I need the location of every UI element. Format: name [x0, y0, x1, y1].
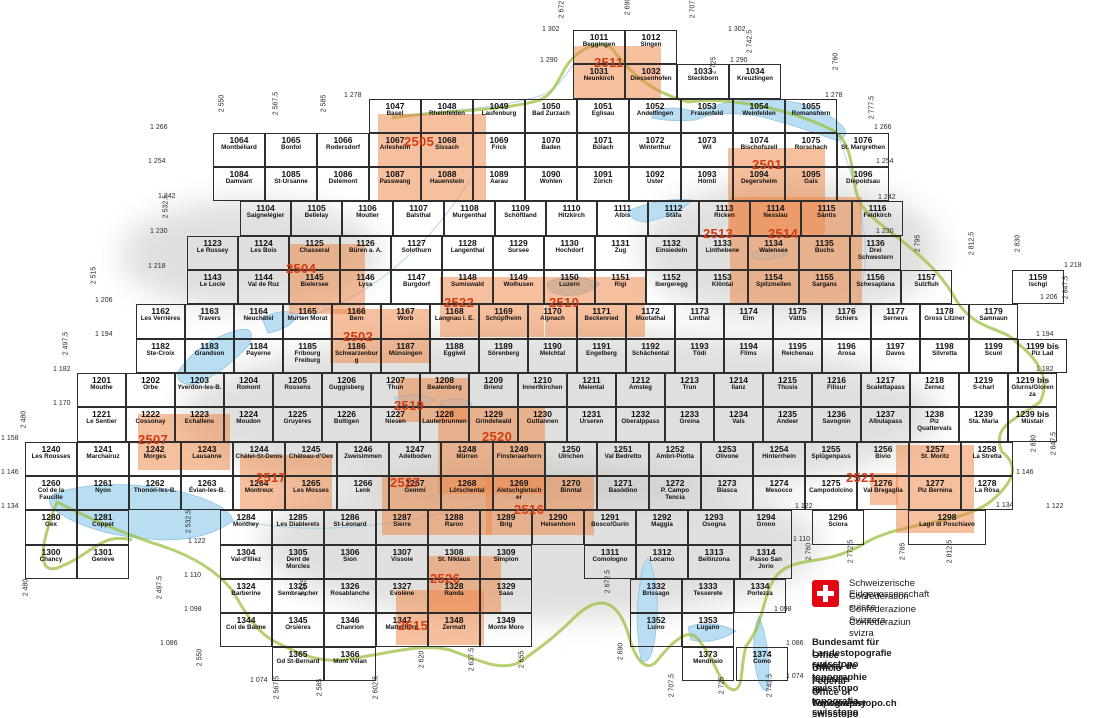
coordinate-label-northing: 1 122	[188, 538, 206, 545]
map-sheet-cell-1228[interactable]: 1228Lauterbrunnen	[420, 407, 469, 442]
map-sheet-cell-1064[interactable]: 1064Montbéliard	[213, 133, 265, 167]
sheet-name: Zürich	[579, 179, 627, 186]
coordinate-label-easting: 2 567.5	[273, 86, 280, 122]
map-sheet-cell-1111[interactable]: 1111Albis	[597, 201, 648, 236]
map-sheet-cell-1176[interactable]: 1176Schiers	[822, 304, 871, 339]
map-sheet-cell-1273[interactable]: 1273Biasca	[701, 476, 753, 510]
map-sheet-cell-1185[interactable]: 1185Fribourg Freiburg	[283, 339, 332, 373]
map-sheet-cell-1294[interactable]: 1294Grono	[740, 510, 792, 545]
map-index-canvas: 1011Beggingen1012Singen1031Neunkirch1032…	[0, 0, 1100, 718]
map-sheet-cell-1152[interactable]: 1152Ibergeregg	[646, 270, 697, 304]
map-sheet-cell-1053[interactable]: 1053Frauenfeld	[681, 99, 733, 133]
map-sheet-cell-1288[interactable]: 1288Raron	[428, 510, 480, 545]
sheet-name: Filisur	[814, 385, 859, 392]
map-sheet-cell-1075[interactable]: 1075Rorschach	[785, 133, 837, 167]
map-sheet-cell-1215[interactable]: 1215Thusis	[763, 373, 812, 407]
sheet-name: Schächental	[628, 351, 673, 358]
sheet-name: Sierre	[378, 522, 426, 529]
map-sheet-cell-1034[interactable]: 1034Kreuzlingen	[729, 64, 781, 99]
map-sheet-cell-1087[interactable]: 1087Passwang	[369, 167, 421, 201]
map-sheet-cell-1232[interactable]: 1232Oberalppass	[616, 407, 665, 442]
map-sheet-cell-1281[interactable]: 1281Coppet	[77, 510, 129, 545]
map-sheet-cell-1151[interactable]: 1151Rigi	[595, 270, 646, 304]
coordinate-label-northing: 1 266	[150, 124, 168, 131]
map-sheet-cell-1108[interactable]: 1108Murgenthal	[444, 201, 495, 236]
map-sheet-cell-1047[interactable]: 1047Basel	[369, 99, 421, 133]
map-sheet-cell-1033[interactable]: 1033Steckborn	[677, 64, 729, 99]
composite-sheet-number-2527[interactable]: 2527	[390, 475, 420, 490]
map-sheet-cell-1179[interactable]: 1179Samnaun	[969, 304, 1018, 339]
map-sheet-cell-1353[interactable]: 1353Lugano	[682, 613, 734, 647]
sheet-name: Porlezza	[736, 591, 784, 598]
map-sheet-cell-1329[interactable]: 1329Saas	[480, 579, 532, 613]
composite-sheet-number-2502[interactable]: 2502	[343, 329, 373, 344]
composite-sheet-number-2514[interactable]: 2514	[768, 226, 798, 241]
sheet-name: Arosa	[824, 351, 869, 358]
map-sheet-cell-1305[interactable]: 1305Dent de Morcles	[272, 545, 324, 579]
sheet-name: Bosco/Gurin	[586, 522, 634, 529]
sheet-name: Saignelégier	[242, 213, 289, 220]
sheet-name: Savognin	[814, 419, 859, 426]
coordinate-label-easting: 2 672.5	[605, 564, 612, 600]
map-sheet-cell-1128[interactable]: 1128Langenthal	[442, 236, 493, 270]
map-sheet-cell-1092[interactable]: 1092Uster	[629, 167, 681, 201]
map-sheet-cell-1192[interactable]: 1192Schächental	[626, 339, 675, 373]
map-sheet-cell-1226[interactable]: 1226Boltigen	[322, 407, 371, 442]
map-sheet-cell-1157[interactable]: 1157Sulzfluh	[901, 270, 952, 304]
sheet-name: Nesslau	[752, 213, 799, 220]
sheet-name: Como	[738, 659, 786, 666]
composite-sheet-number-2513[interactable]: 2513	[703, 226, 733, 241]
map-sheet-cell-1352[interactable]: 1352Luino	[630, 613, 682, 647]
map-sheet-cell-1072[interactable]: 1072Winterthur	[629, 133, 681, 167]
map-sheet-cell-1211[interactable]: 1211Meiental	[567, 373, 616, 407]
map-sheet-cell-1210[interactable]: 1210Innertkirchen	[518, 373, 567, 407]
map-sheet-cell-1105[interactable]: 1105Bellelay	[291, 201, 342, 236]
map-sheet-cell-1300[interactable]: 1300Chancy	[25, 545, 77, 579]
map-sheet-cell-1175[interactable]: 1175Vättis	[773, 304, 822, 339]
map-sheet-cell-1086[interactable]: 1086Delémont	[317, 167, 369, 201]
sheet-name: Bülach	[579, 145, 627, 152]
map-sheet-cell-1088[interactable]: 1088Hauenstein	[421, 167, 473, 201]
map-sheet-cell-1131[interactable]: 1131Zug	[595, 236, 646, 270]
map-sheet-cell-1209[interactable]: 1209Brienz	[469, 373, 518, 407]
swisstopo-url-link[interactable]: www.swisstopo.ch	[812, 698, 897, 709]
map-sheet-cell-1344[interactable]: 1344Col de Balme	[220, 613, 272, 647]
map-sheet-cell-1129[interactable]: 1129Sursee	[493, 236, 544, 270]
map-sheet-cell-1112[interactable]: 1112Stäfa	[648, 201, 699, 236]
map-sheet-cell-1178[interactable]: 1178Gross Litzner	[920, 304, 969, 339]
map-sheet-cell-1216[interactable]: 1216Filisur	[812, 373, 861, 407]
map-sheet-cell-1187[interactable]: 1187Münsingen	[381, 339, 430, 373]
map-sheet-cell-1212[interactable]: 1212Amsteg	[616, 373, 665, 407]
map-sheet-cell-1287[interactable]: 1287Sierre	[376, 510, 428, 545]
map-sheet-cell-1235[interactable]: 1235Andeer	[763, 407, 812, 442]
sheet-name: Hinterrhein	[755, 454, 803, 461]
map-sheet-cell-1249[interactable]: 1249Finsteraarhorn	[493, 442, 545, 476]
map-sheet-cell-1243[interactable]: 1243Lausanne	[181, 442, 233, 476]
map-sheet-cell-1206[interactable]: 1206Guggisberg	[322, 373, 371, 407]
map-sheet-cell-1094[interactable]: 1094Degersheim	[733, 167, 785, 201]
composite-sheet-number-2517[interactable]: 2517	[256, 470, 286, 485]
map-sheet-cell-1233[interactable]: 1233Greina	[665, 407, 714, 442]
map-sheet-cell-1304[interactable]: 1304Val-d'Illiez	[220, 545, 272, 579]
map-sheet-cell-1223[interactable]: 1223Echallens	[175, 407, 224, 442]
map-sheet-cell-1135[interactable]: 1135Buchs	[799, 236, 850, 270]
map-sheet-cell-1132[interactable]: 1132Einsiedeln	[646, 236, 697, 270]
map-sheet-cell-1333[interactable]: 1333Tesserete	[682, 579, 734, 613]
coordinate-label-easting: 2 760	[833, 44, 840, 80]
composite-sheet-number-2505[interactable]: 2505	[404, 134, 434, 149]
sheet-name: Rorschach	[787, 145, 835, 152]
map-sheet-cell-1224[interactable]: 1224Moudon	[224, 407, 273, 442]
map-sheet-cell-1312[interactable]: 1312Locarno	[636, 545, 688, 579]
sheet-name: Beckenried	[579, 316, 624, 323]
composite-sheet-number-2516[interactable]: 2516	[514, 502, 544, 517]
map-sheet-cell-1172[interactable]: 1172Muotathal	[626, 304, 675, 339]
coordinate-label-easting: 2 532.5	[186, 504, 193, 540]
map-sheet-cell-1154[interactable]: 1154Spitzmeilen	[748, 270, 799, 304]
coordinate-label-northing: 1 122	[1046, 503, 1064, 510]
map-sheet-cell-1084[interactable]: 1084Damvant	[213, 167, 265, 201]
map-sheet-cell-1313[interactable]: 1313Bellinzona	[688, 545, 740, 579]
map-sheet-cell-1090[interactable]: 1090Wohlen	[525, 167, 577, 201]
map-sheet-cell-1196[interactable]: 1196Arosa	[822, 339, 871, 373]
map-sheet-cell-1136[interactable]: 1136Drei Schwestern	[850, 236, 901, 270]
sheet-name: Kreuzlingen	[731, 76, 779, 83]
coordinate-label-easting: 2 742.5	[747, 24, 754, 60]
coordinate-label-northing: 1 302	[728, 26, 746, 33]
sheet-name: Tödi	[677, 351, 722, 358]
composite-sheet-number-2520[interactable]: 2520	[482, 429, 512, 444]
map-sheet-cell-1306[interactable]: 1306Sion	[324, 545, 376, 579]
sheet-name: Eglisau	[579, 111, 627, 118]
map-sheet-cell-1236[interactable]: 1236Savognin	[812, 407, 861, 442]
map-sheet-cell-1332[interactable]: 1332Brissago	[630, 579, 682, 613]
map-sheet-cell-1258[interactable]: 1258La Stretta	[961, 442, 1013, 476]
map-sheet-cell-1208[interactable]: 1208Beatenberg	[420, 373, 469, 407]
map-sheet-cell-1085[interactable]: 1085St-Ursanne	[265, 167, 317, 201]
map-sheet-cell-1292[interactable]: 1292Maggia	[636, 510, 688, 545]
map-sheet-cell-1266[interactable]: 1266Lenk	[337, 476, 389, 510]
map-sheet-cell-1146[interactable]: 1146Lyss	[340, 270, 391, 304]
map-sheet-cell-1091[interactable]: 1091Zürich	[577, 167, 629, 201]
coordinate-label-northing: 1 134	[1, 503, 19, 510]
sheet-name: Flims	[726, 351, 771, 358]
map-sheet-cell-1054[interactable]: 1054Weinfelden	[733, 99, 785, 133]
map-sheet-cell-1115[interactable]: 1115Säntis	[801, 201, 852, 236]
map-sheet-cell-1314[interactable]: 1314Passo San Jorio	[740, 545, 792, 579]
map-sheet-cell-1219[interactable]: 1219S-charl	[959, 373, 1008, 407]
map-sheet-cell-1242[interactable]: 1242Morges	[129, 442, 181, 476]
map-sheet-cell-1069[interactable]: 1069Frick	[473, 133, 525, 167]
sheet-name: Vättis	[775, 316, 820, 323]
sheet-name: Le Locle	[189, 282, 236, 289]
sheet-name: Les Bois	[240, 248, 287, 255]
map-sheet-cell-1250[interactable]: 1250Ulrichen	[545, 442, 597, 476]
map-sheet-cell-1201[interactable]: 1201Mouthe	[77, 373, 126, 407]
coordinate-label-northing: 1 254	[148, 158, 166, 165]
map-sheet-cell-1127[interactable]: 1127Solothurn	[391, 236, 442, 270]
map-sheet-cell-1285[interactable]: 1285Les Diablerets	[272, 510, 324, 545]
map-sheet-cell-1049[interactable]: 1049Laufenburg	[473, 99, 525, 133]
coordinate-label-easting: 2 772.5	[848, 534, 855, 570]
map-sheet-cell-1240[interactable]: 1240Les Rousses	[25, 442, 77, 476]
map-sheet-cell-1280[interactable]: 1280Gex	[25, 510, 77, 545]
composite-sheet-number-2511[interactable]: 2511	[594, 55, 623, 70]
map-sheet-cell-1173[interactable]: 1173Linthal	[675, 304, 724, 339]
map-sheet-cell-1071[interactable]: 1071Bülach	[577, 133, 629, 167]
coordinate-label-easting: 2 785	[900, 534, 907, 570]
map-sheet-cell-1277[interactable]: 1277Piz Bernina	[909, 476, 961, 510]
map-sheet-cell-1265[interactable]: 1265Les Mosses	[285, 476, 337, 510]
map-sheet-cell-1190[interactable]: 1190Melchtal	[528, 339, 577, 373]
map-sheet-cell-1374[interactable]: 1374Como	[736, 647, 788, 681]
map-sheet-cell-1153[interactable]: 1153Klöntal	[697, 270, 748, 304]
composite-sheet-number-2522[interactable]: 2522	[444, 295, 474, 310]
map-sheet-cell-1032[interactable]: 1032Diessenhofen	[625, 64, 677, 99]
map-sheet-cell-1169[interactable]: 1169Schüpfheim	[479, 304, 528, 339]
map-sheet-cell-1247[interactable]: 1247Adelboden	[389, 442, 441, 476]
map-sheet-cell-1230[interactable]: 1230Guttannen	[518, 407, 567, 442]
sheet-name: Murten Morat	[285, 316, 330, 323]
coordinate-label-easting: 2 497.5	[157, 570, 164, 606]
map-sheet-cell-1251[interactable]: 1251Val Bedretto	[597, 442, 649, 476]
map-sheet-cell-1254[interactable]: 1254Hinterrhein	[753, 442, 805, 476]
map-sheet-cell-1183[interactable]: 1183Grandson	[185, 339, 234, 373]
map-sheet-cell-1163[interactable]: 1163Travers	[185, 304, 234, 339]
sheet-name: Andelfingen	[631, 111, 679, 118]
sheet-name: Ste-Croix	[138, 351, 183, 358]
sheet-name: Scalettapass	[863, 385, 908, 392]
map-sheet-cell-1052[interactable]: 1052Andelfingen	[629, 99, 681, 133]
sheet-name: Ambrì-Piotta	[651, 454, 699, 461]
composite-sheet-number-2515[interactable]: 2515	[398, 618, 428, 633]
map-sheet-cell-1124[interactable]: 1124Les Bois	[238, 236, 289, 270]
map-sheet-cell-1301[interactable]: 1301Genève	[77, 545, 129, 579]
map-sheet-cell-1307[interactable]: 1307Vissoie	[376, 545, 428, 579]
sheet-name: Sargans	[801, 282, 848, 289]
map-sheet-cell-1214[interactable]: 1214Ilanz	[714, 373, 763, 407]
map-sheet-cell-1107[interactable]: 1107Balsthal	[393, 201, 444, 236]
map-sheet-cell-1231[interactable]: 1231Urseren	[567, 407, 616, 442]
map-sheet-cell-1147[interactable]: 1147Burgdorf	[391, 270, 442, 304]
map-sheet-cell-1213[interactable]: 1213Trun	[665, 373, 714, 407]
map-sheet-cell-1238[interactable]: 1238Piz Quattervals	[910, 407, 959, 442]
map-sheet-cell-1366[interactable]: 1366Mont Vélan	[324, 647, 376, 681]
composite-sheet-number-2504[interactable]: 2504	[286, 261, 316, 276]
map-sheet-cell-1246[interactable]: 1246Zweisimmen	[337, 442, 389, 476]
map-sheet-cell-1177[interactable]: 1177Serneus	[871, 304, 920, 339]
coordinate-label-easting: 2 830	[1031, 426, 1038, 462]
map-sheet-cell-1133[interactable]: 1133Linthebene	[697, 236, 748, 270]
map-sheet-cell-1130[interactable]: 1130Hochdorf	[544, 236, 595, 270]
map-sheet-cell-1284[interactable]: 1284Monthey	[220, 510, 272, 545]
composite-sheet-number-2526[interactable]: 2526	[430, 571, 460, 586]
map-sheet-cell-1149[interactable]: 1149Wolhusen	[493, 270, 544, 304]
map-sheet-cell-1073[interactable]: 1073Wil	[681, 133, 733, 167]
map-sheet-cell-1191[interactable]: 1191Engelberg	[577, 339, 626, 373]
map-sheet-cell-1199[interactable]: 1199Scuol	[969, 339, 1018, 373]
sheet-name: Vissoie	[378, 557, 426, 564]
map-sheet-cell-1272[interactable]: 1272P. Campo Tencia	[649, 476, 701, 510]
map-sheet-cell-1189[interactable]: 1189Sörenberg	[479, 339, 528, 373]
map-sheet-cell-1261[interactable]: 1261Nyon	[77, 476, 129, 510]
map-sheet-cell-1109[interactable]: 1109Schöftland	[495, 201, 546, 236]
map-sheet-cell-1325[interactable]: 1325Sembrancher	[272, 579, 324, 613]
map-sheet-cell-1123[interactable]: 1123Le Russey	[187, 236, 238, 270]
map-sheet-cell-1253[interactable]: 1253Olivone	[701, 442, 753, 476]
map-sheet-cell-1291[interactable]: 1291Bosco/Gurin	[584, 510, 636, 545]
map-sheet-cell-1155[interactable]: 1155Sargans	[799, 270, 850, 304]
map-sheet-cell-1204[interactable]: 1204Romont	[224, 373, 273, 407]
map-sheet-cell-1346[interactable]: 1346Chanrion	[324, 613, 376, 647]
map-sheet-cell-1182[interactable]: 1182Ste-Croix	[136, 339, 185, 373]
map-sheet-cell-1089[interactable]: 1089Aarau	[473, 167, 525, 201]
composite-sheet-number-2519[interactable]: 2519	[394, 398, 424, 413]
map-sheet-cell-1143[interactable]: 1143Le Locle	[187, 270, 238, 304]
map-sheet-cell-1106[interactable]: 1106Moutier	[342, 201, 393, 236]
coordinate-label-northing: 1 170	[53, 400, 71, 407]
map-sheet-cell-1193[interactable]: 1193Tödi	[675, 339, 724, 373]
sheet-name: Morges	[131, 454, 179, 461]
sheet-name: Ilanz	[716, 385, 761, 392]
map-sheet-cell-1188[interactable]: 1188Eggiwil	[430, 339, 479, 373]
sheet-name: Piz Bernina	[911, 488, 959, 495]
map-sheet-cell-1066[interactable]: 1066Rodersdorf	[317, 133, 369, 167]
map-sheet-cell-1055[interactable]: 1055Romanshorn	[785, 99, 837, 133]
map-sheet-cell-1184[interactable]: 1184Payerne	[234, 339, 283, 373]
map-sheet-cell-1065[interactable]: 1065Bonfol	[265, 133, 317, 167]
map-sheet-cell-1194[interactable]: 1194Flims	[724, 339, 773, 373]
map-sheet-cell-1156[interactable]: 1156Schesaplana	[850, 270, 901, 304]
map-sheet-cell-1218[interactable]: 1218Zernez	[910, 373, 959, 407]
sheet-name: Sörenberg	[481, 351, 526, 358]
map-sheet-cell-1093[interactable]: 1093Hörnli	[681, 167, 733, 201]
map-sheet-cell-1144[interactable]: 1144Val de Ruz	[238, 270, 289, 304]
map-sheet-cell-1309[interactable]: 1309Simplon	[480, 545, 532, 579]
map-sheet-cell-1070[interactable]: 1070Baden	[525, 133, 577, 167]
map-sheet-cell-1237[interactable]: 1237Albulapass	[861, 407, 910, 442]
map-sheet-cell-1219bis[interactable]: 1219 bisGlurns/Glorenza	[1008, 373, 1057, 407]
composite-sheet-number-2507[interactable]: 2507	[138, 432, 168, 447]
sheet-name: Neuchâtel	[236, 316, 281, 323]
map-sheet-cell-1051[interactable]: 1051Eglisau	[577, 99, 629, 133]
map-sheet-cell-1373[interactable]: 1373Mendrisio	[682, 647, 734, 681]
map-sheet-cell-1050[interactable]: 1050Bad Zurzach	[525, 99, 577, 133]
sheet-name: Greina	[667, 419, 712, 426]
map-sheet-cell-1241[interactable]: 1241Marchairuz	[77, 442, 129, 476]
sheet-name: Weinfelden	[735, 111, 783, 118]
map-sheet-cell-1048[interactable]: 1048Rheinfelden	[421, 99, 473, 133]
map-sheet-cell-1095[interactable]: 1095Gais	[785, 167, 837, 201]
sheet-name: Elm	[726, 316, 771, 323]
sheet-name: Le Sentier	[79, 419, 124, 426]
map-sheet-cell-1162[interactable]: 1162Les Verrières	[136, 304, 185, 339]
sheet-name: Sciora	[814, 522, 862, 529]
map-sheet-cell-1225[interactable]: 1225Gruyères	[273, 407, 322, 442]
sheet-name: Alpnach	[530, 316, 575, 323]
map-sheet-cell-1167[interactable]: 1167Worb	[381, 304, 430, 339]
map-sheet-cell-1239[interactable]: 1239Sta. Maria	[959, 407, 1008, 442]
map-sheet-cell-1324[interactable]: 1324Barberine	[220, 579, 272, 613]
map-sheet-cell-1126[interactable]: 1126Büren a. A.	[340, 236, 391, 270]
sheet-name: Engelberg	[579, 351, 624, 358]
map-sheet-cell-1326[interactable]: 1326Rosablanche	[324, 579, 376, 613]
sheet-name: Zug	[597, 248, 644, 255]
sheet-name: Ricken	[701, 213, 748, 220]
map-sheet-cell-1327[interactable]: 1327Evolène	[376, 579, 428, 613]
map-sheet-cell-1198[interactable]: 1198Silvretta	[920, 339, 969, 373]
composite-sheet-number-2510[interactable]: 2510	[549, 295, 579, 310]
map-sheet-cell-1195[interactable]: 1195Reichenau	[773, 339, 822, 373]
map-sheet-cell-1202[interactable]: 1202Orbe	[126, 373, 175, 407]
coordinate-label-easting: 2 847.5	[1051, 426, 1058, 462]
map-sheet-cell-1286[interactable]: 1286St-Léonard	[324, 510, 376, 545]
map-sheet-cell-1217[interactable]: 1217Scalettapass	[861, 373, 910, 407]
map-sheet-cell-1205[interactable]: 1205Rossens	[273, 373, 322, 407]
map-sheet-cell-1012[interactable]: 1012Singen	[625, 30, 677, 64]
sheet-name: Nyon	[79, 488, 127, 495]
map-sheet-cell-1171[interactable]: 1171Beckenried	[577, 304, 626, 339]
map-sheet-cell-1234[interactable]: 1234Vals	[714, 407, 763, 442]
sheet-name: Singen	[627, 42, 675, 49]
map-sheet-cell-1268[interactable]: 1268Lötschental	[441, 476, 493, 510]
sheet-name: Schüpfheim	[481, 316, 526, 323]
sheet-name: Hitzkirch	[548, 213, 595, 220]
sheet-name: Randa	[430, 591, 478, 598]
map-sheet-cell-1134[interactable]: 1134Walensee	[748, 236, 799, 270]
map-sheet-cell-1197[interactable]: 1197Davos	[871, 339, 920, 373]
coordinate-label-easting: 2 585	[317, 670, 324, 706]
map-sheet-cell-1110[interactable]: 1110Hitzkirch	[546, 201, 597, 236]
map-sheet-cell-1271[interactable]: 1271Basòdino	[597, 476, 649, 510]
coordinate-label-northing: 1 194	[95, 331, 113, 338]
map-sheet-cell-1257[interactable]: 1257St. Moritz	[909, 442, 961, 476]
composite-sheet-number-2521[interactable]: 2521	[846, 470, 876, 485]
map-sheet-cell-1186[interactable]: 1186Schwarzenburg	[332, 339, 381, 373]
map-sheet-cell-1174[interactable]: 1174Elm	[724, 304, 773, 339]
map-sheet-cell-1296[interactable]: 1296Sciora	[812, 510, 864, 545]
map-sheet-cell-1270[interactable]: 1270Binntal	[545, 476, 597, 510]
sheet-name: Solothurn	[393, 248, 440, 255]
coordinate-label-easting: 2 585	[321, 86, 328, 122]
map-sheet-cell-1245[interactable]: 1245Château-d'Oex	[285, 442, 337, 476]
map-sheet-cell-1293[interactable]: 1293Osogna	[688, 510, 740, 545]
map-sheet-cell-1252[interactable]: 1252Ambrì-Piotta	[649, 442, 701, 476]
sheet-name: Evolène	[378, 591, 426, 598]
coordinate-label-easting: 2 655	[519, 642, 526, 678]
map-sheet-cell-1164[interactable]: 1164Neuchâtel	[234, 304, 283, 339]
composite-sheet-number-2501[interactable]: 2501	[752, 157, 782, 172]
map-sheet-cell-1262[interactable]: 1262Thonon-les-B.	[129, 476, 181, 510]
sheet-name: Moutier	[344, 213, 391, 220]
sheet-name: Niesen	[373, 419, 418, 426]
map-sheet-cell-1104[interactable]: 1104Saignelégier	[240, 201, 291, 236]
map-sheet-cell-1203[interactable]: 1203Yverdon-les-B.	[175, 373, 224, 407]
map-sheet-cell-1248[interactable]: 1248Mürren	[441, 442, 493, 476]
map-sheet-cell-1260[interactable]: 1260Col de la Faucille	[25, 476, 77, 510]
sheet-name: Reichenau	[775, 351, 820, 358]
coordinate-label-northing: 1 218	[148, 263, 166, 270]
map-sheet-cell-1345[interactable]: 1345Orsières	[272, 613, 324, 647]
sheet-name: Grandson	[187, 351, 232, 358]
sheet-name: Sulzfluh	[903, 282, 950, 289]
coordinate-label-easting: 2 620	[419, 642, 426, 678]
map-sheet-cell-1221[interactable]: 1221Le Sentier	[77, 407, 126, 442]
coordinate-label-northing: 1 122	[795, 503, 813, 510]
map-sheet-cell-1165[interactable]: 1165Murten Morat	[283, 304, 332, 339]
